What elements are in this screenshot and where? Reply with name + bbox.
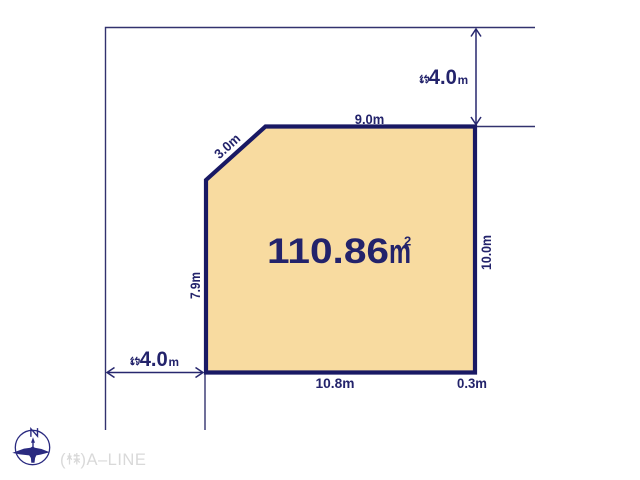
svg-text:2: 2 bbox=[404, 234, 411, 249]
svg-text:m: m bbox=[458, 73, 469, 87]
svg-text:)A–LINE: )A–LINE bbox=[81, 451, 147, 469]
svg-text:9.0m: 9.0m bbox=[355, 112, 385, 127]
svg-text:0.3m: 0.3m bbox=[457, 376, 487, 391]
svg-text:m: m bbox=[169, 355, 180, 369]
svg-text:(: ( bbox=[60, 451, 66, 469]
svg-text:110.86: 110.86 bbox=[267, 232, 389, 271]
svg-text:4.0: 4.0 bbox=[429, 66, 457, 89]
svg-text:4.0: 4.0 bbox=[140, 348, 168, 371]
svg-text:7.9m: 7.9m bbox=[188, 272, 203, 299]
svg-text:10.0m: 10.0m bbox=[479, 235, 494, 270]
svg-text:10.8m: 10.8m bbox=[316, 376, 355, 391]
